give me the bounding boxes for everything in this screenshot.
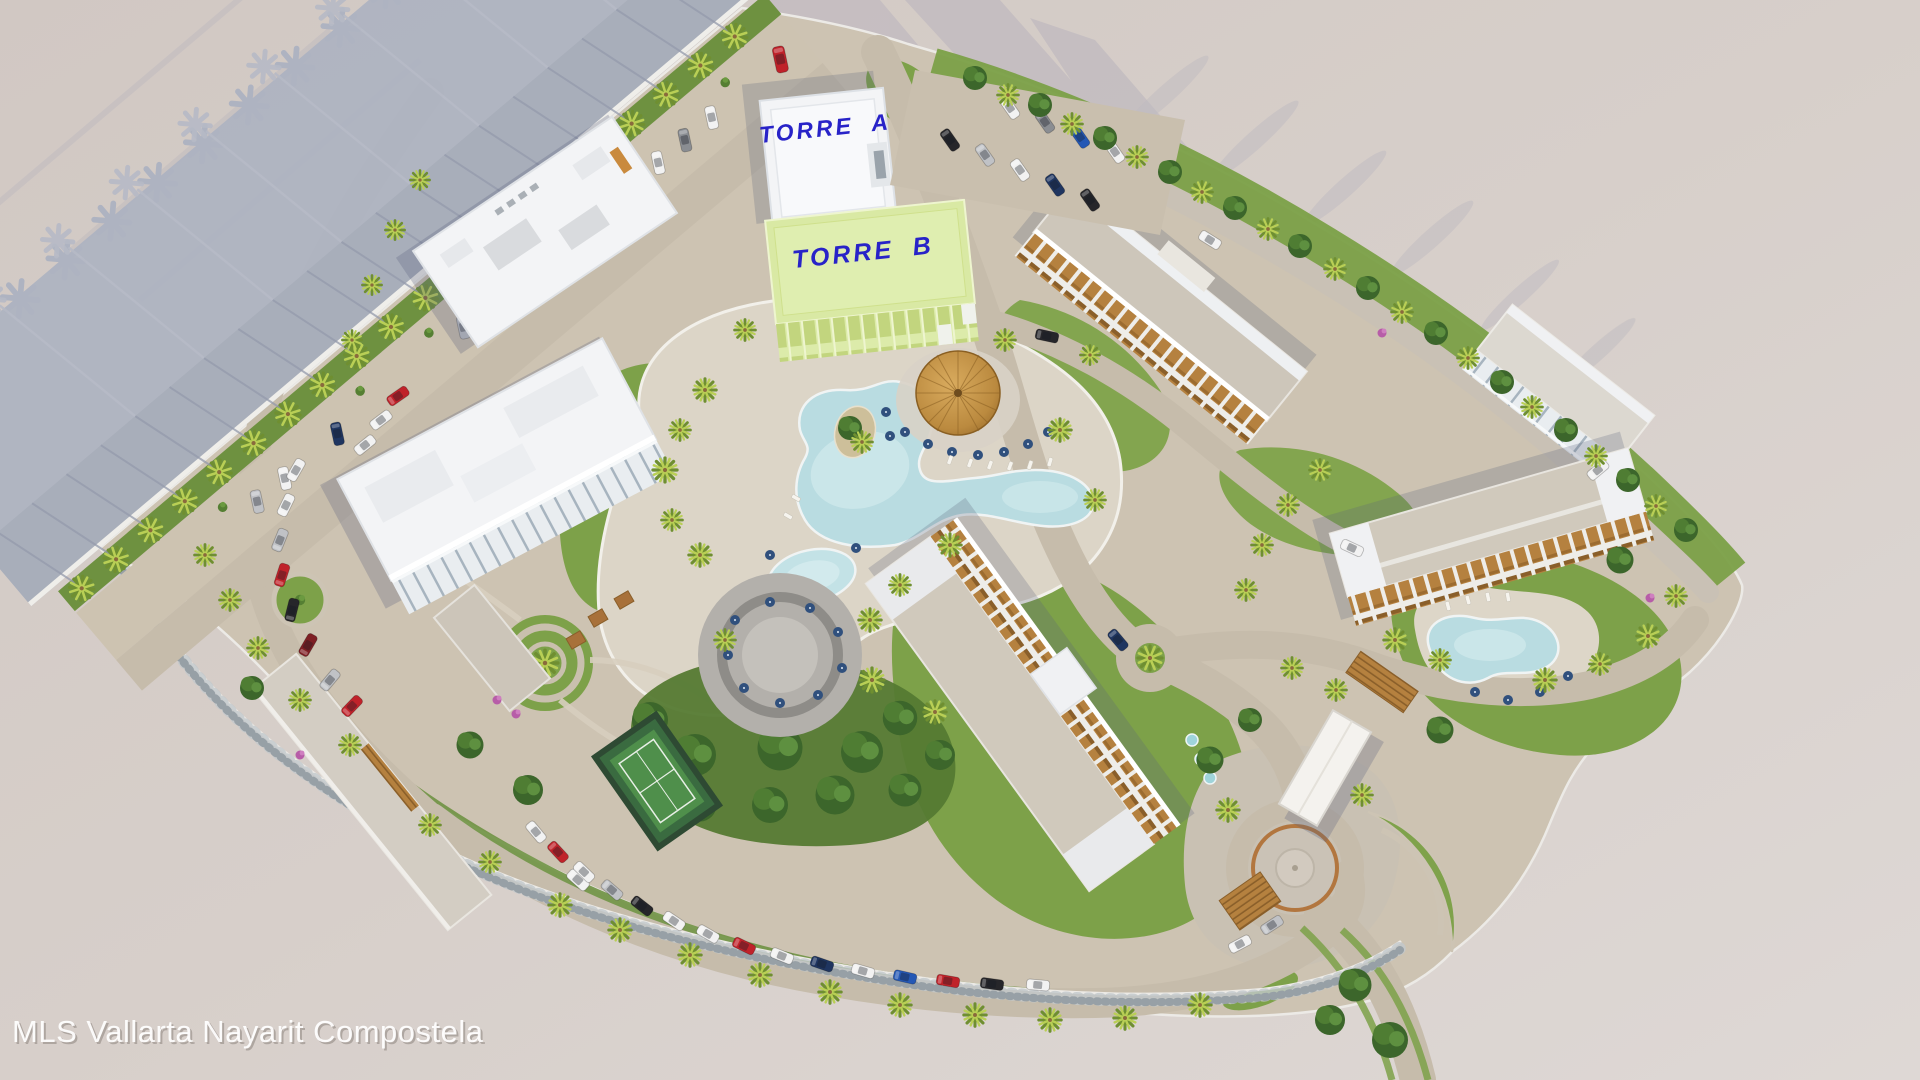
bougainvillea-icon — [493, 696, 502, 705]
aerial-render: TORRE A TORRE B — [0, 0, 1920, 1080]
umbrella-icon — [947, 447, 957, 457]
bougainvillea-icon — [512, 710, 521, 719]
palm-tree-icon — [1085, 490, 1106, 511]
palm-tree-icon — [1352, 785, 1373, 806]
tree-icon — [1616, 468, 1640, 492]
palm-tree-icon — [385, 220, 404, 239]
palm-tree-icon — [749, 964, 771, 986]
palm-tree-icon — [1189, 994, 1211, 1016]
palm-tree-icon — [939, 534, 961, 556]
palm-tree-icon — [1646, 496, 1667, 517]
tree-icon — [1427, 717, 1454, 744]
tree-icon — [1197, 747, 1224, 774]
umbrella-icon — [775, 698, 785, 708]
palm-tree-icon — [735, 320, 756, 341]
palm-tree-icon — [859, 609, 881, 631]
palm-tree-icon — [860, 668, 884, 692]
palm-tree-icon — [1217, 799, 1239, 821]
umbrella-icon — [885, 431, 895, 441]
palapa-bar — [896, 348, 1020, 452]
tree-icon — [513, 775, 543, 805]
umbrella-icon — [813, 690, 823, 700]
umbrella-icon — [1470, 687, 1480, 697]
umbrella-icon — [900, 427, 910, 437]
torre-b-tower: TORRE B — [765, 200, 979, 362]
palm-tree-icon — [1252, 535, 1273, 556]
palm-tree-icon — [1192, 182, 1213, 203]
umbrella-icon — [973, 450, 983, 460]
palm-tree-icon — [1326, 680, 1347, 701]
palm-tree-icon — [964, 1004, 986, 1026]
palm-tree-icon — [420, 815, 441, 836]
palm-tree-icon — [670, 420, 691, 441]
bougainvillea-icon — [1646, 594, 1655, 603]
umbrella-icon — [833, 627, 843, 637]
palm-tree-icon — [1325, 259, 1346, 280]
tree-icon — [889, 774, 922, 807]
palm-tree-icon — [662, 510, 683, 531]
palm-tree-icon — [653, 458, 677, 482]
palm-tree-icon — [410, 170, 429, 189]
tree-icon — [1490, 370, 1514, 394]
palm-tree-icon — [248, 638, 269, 659]
umbrella-icon — [881, 407, 891, 417]
tree-icon — [1028, 93, 1052, 117]
palm-tree-icon — [1392, 302, 1413, 323]
umbrella-icon — [923, 439, 933, 449]
tree-icon — [1315, 1005, 1345, 1035]
tree-icon — [1424, 321, 1448, 345]
bougainvillea-icon — [1378, 329, 1387, 338]
tree-icon — [816, 776, 855, 815]
palm-tree-icon — [819, 981, 841, 1003]
tree-icon — [1372, 1022, 1408, 1058]
umbrella-icon — [837, 663, 847, 673]
palm-tree-icon — [689, 544, 711, 566]
tree-icon — [1339, 969, 1372, 1002]
palm-tree-icon — [1384, 629, 1406, 651]
palm-tree-icon — [195, 545, 216, 566]
tree-icon — [457, 732, 484, 759]
palm-tree-icon — [342, 330, 361, 349]
palm-tree-icon — [852, 432, 873, 453]
palm-tree-icon — [1430, 650, 1451, 671]
watermark: MLS Vallarta Nayarit Compostela — [12, 1014, 484, 1049]
umbrella-icon — [765, 550, 775, 560]
palm-tree-icon — [1114, 1007, 1136, 1029]
palm-tree-icon — [1637, 625, 1659, 647]
tree-icon — [1093, 126, 1117, 150]
tree-icon — [1554, 418, 1578, 442]
tree-icon — [1288, 234, 1312, 258]
palm-tree-icon — [924, 701, 946, 723]
palm-tree-icon — [1278, 495, 1299, 516]
palm-tree-icon — [1258, 219, 1279, 240]
palm-tree-icon — [1282, 658, 1303, 679]
umbrella-icon — [730, 615, 740, 625]
bougainvillea-icon — [296, 751, 305, 760]
palm-tree-icon — [549, 894, 571, 916]
tree-icon — [752, 787, 788, 823]
palm-tree-icon — [1310, 460, 1331, 481]
umbrella-icon — [765, 597, 775, 607]
umbrella-icon — [805, 603, 815, 613]
palm-tree-icon — [1236, 580, 1257, 601]
tree-icon — [883, 701, 918, 736]
tree-icon — [1674, 518, 1698, 542]
tree-icon — [925, 740, 955, 770]
restaurant-terrace — [698, 573, 862, 737]
palm-tree-icon — [362, 275, 381, 294]
car-icon — [1026, 979, 1050, 991]
palm-tree-icon — [998, 85, 1019, 106]
palm-tree-icon — [1590, 654, 1611, 675]
palm-tree-icon — [1080, 345, 1099, 364]
palm-tree-icon — [889, 994, 911, 1016]
palm-tree-icon — [340, 735, 361, 756]
palm-tree-icon — [1586, 446, 1607, 467]
palm-tree-icon — [1039, 1009, 1061, 1031]
umbrella-icon — [739, 683, 749, 693]
tree-icon — [1607, 547, 1634, 574]
palm-tree-icon — [290, 690, 311, 711]
tree-icon — [1158, 160, 1182, 184]
palm-tree-icon — [1062, 114, 1083, 135]
tree-icon — [963, 66, 987, 90]
palm-tree-icon — [609, 919, 631, 941]
umbrella-icon — [1023, 439, 1033, 449]
roundabout — [1116, 624, 1184, 692]
palm-tree-icon — [220, 590, 241, 611]
tree-icon — [1223, 196, 1247, 220]
palm-tree-icon — [1138, 646, 1162, 670]
palm-tree-icon — [715, 630, 736, 651]
umbrella-icon — [1563, 671, 1573, 681]
umbrella-icon — [851, 543, 861, 553]
palm-tree-icon — [694, 379, 716, 401]
umbrella-icon — [999, 447, 1009, 457]
masterplan-svg: TORRE A TORRE B — [0, 0, 1920, 1080]
palm-tree-icon — [1534, 669, 1556, 691]
tree-icon — [841, 731, 883, 773]
umbrella-icon — [1503, 695, 1513, 705]
tree-icon — [1238, 708, 1262, 732]
tree-icon — [240, 676, 264, 700]
palm-tree-icon — [679, 944, 701, 966]
palm-tree-icon — [1127, 147, 1148, 168]
palm-tree-icon — [1049, 419, 1071, 441]
tree-icon — [1356, 276, 1380, 300]
palm-tree-icon — [995, 330, 1016, 351]
palm-tree-icon — [480, 852, 501, 873]
palm-tree-icon — [890, 575, 911, 596]
palm-tree-icon — [1458, 348, 1479, 369]
palm-tree-icon — [1522, 397, 1543, 418]
palm-tree-icon — [1666, 586, 1687, 607]
